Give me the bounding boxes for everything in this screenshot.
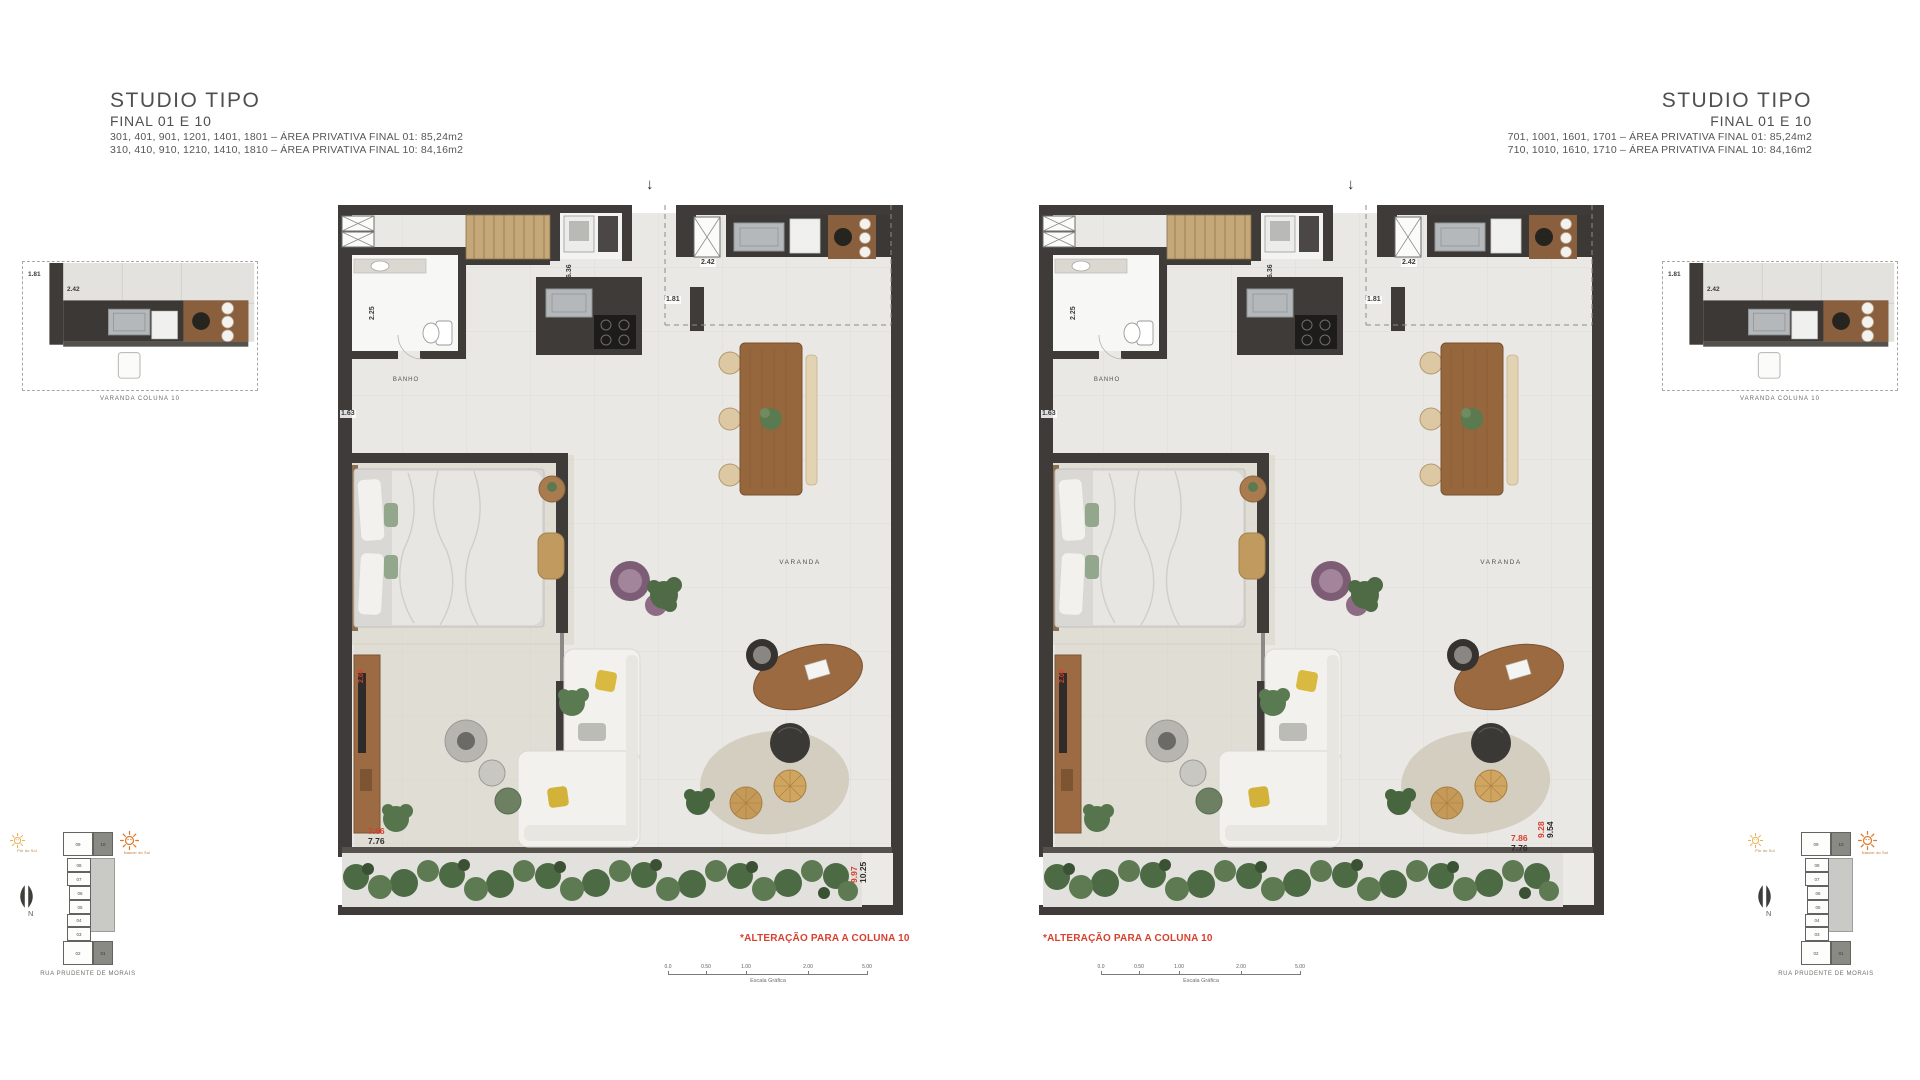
scale-bar-line <box>1101 974 1301 975</box>
inset-dim-width: 2.42 <box>1707 286 1720 294</box>
dim-bottom: 7.76 <box>1511 843 1528 853</box>
dim-163: 1.63 <box>1041 410 1057 418</box>
unit-cell-02: 02 <box>1801 941 1831 965</box>
building-slab <box>89 858 115 932</box>
scale-bar: 0.0 0.50 1.00 2.00 5.00 Escala Gráfica <box>1101 966 1301 988</box>
alteration-note: *ALTERAÇÃO PARA A COLUNA 10 <box>740 933 910 944</box>
sunrise-sun: Nascer do Sol <box>120 831 154 855</box>
unit-cell-01: 01 <box>93 941 113 965</box>
dim-242: 2.42 <box>1401 259 1417 267</box>
unit-cell-10: 10 <box>93 832 113 856</box>
sun-icon <box>120 831 139 850</box>
north-label: N <box>17 909 45 918</box>
unit-cell-08: 08 <box>67 858 91 872</box>
varanda-inset-drawing <box>1663 262 1897 390</box>
sun-label: Nascer do Sol <box>120 851 154 855</box>
inset-dim-width: 2.42 <box>67 286 80 294</box>
sun-icon <box>10 833 25 848</box>
room-label-varanda: VARANDA <box>1471 559 1531 566</box>
sun-label: Nascer do Sol <box>1858 851 1892 855</box>
title-block-right: STUDIO TIPO FINAL 01 E 10 701, 1001, 160… <box>1508 90 1812 157</box>
compass-icon <box>1755 885 1774 908</box>
scale-tick-label: 5.00 <box>862 964 872 970</box>
scale-bar-caption: Escala Gráfica <box>1101 978 1301 984</box>
scale-bar-line <box>668 974 868 975</box>
sunset-sun: Pôr do Sol <box>10 833 44 853</box>
varanda-inset-drawing <box>23 262 257 390</box>
unit-cell-07: 07 <box>1805 872 1829 886</box>
location-key-left: Pôr do Sol Nascer do Sol N 09 10 08 07 0… <box>12 828 180 988</box>
location-key-right: Pôr do Sol Nascer do Sol N 09 10 08 07 0… <box>1750 828 1918 988</box>
dim-pair-right: 9.28 9.54 <box>1537 821 1555 838</box>
alteration-note: *ALTERAÇÃO PARA A COLUNA 10 <box>1043 933 1213 944</box>
inset-dim-height: 1.81 <box>1668 271 1681 279</box>
scale-bar-caption: Escala Gráfica <box>668 978 868 984</box>
dim-225: 2.25 <box>369 306 377 320</box>
dim-pair-right: 9.97 10.25 <box>850 862 868 883</box>
dim-red-side: 2.08 <box>358 669 366 683</box>
dim-181: 1.81 <box>1366 296 1382 304</box>
dim-636: 6.36 <box>566 264 574 278</box>
room-label-varanda: VARANDA <box>770 559 830 566</box>
dim-225: 2.25 <box>1070 306 1078 320</box>
page-title: STUDIO TIPO <box>110 90 463 112</box>
page-title: STUDIO TIPO <box>1508 90 1812 112</box>
title-block-left: STUDIO TIPO FINAL 01 E 10 301, 401, 901,… <box>110 90 463 157</box>
north-label: N <box>1755 909 1783 918</box>
unit-cell-06: 06 <box>69 886 91 900</box>
dim-181: 1.81 <box>665 296 681 304</box>
dim-pair-bottom: 7.66 7.76 <box>368 826 385 846</box>
dim-right: 9.54 <box>1546 821 1555 838</box>
varanda-inset-left: 1.81 2.42 VARANDA COLUNA 10 <box>22 261 258 411</box>
scale-tick-label: 0.0 <box>665 964 672 970</box>
dim-right: 10.25 <box>859 862 868 883</box>
scale-tick-label: 5.00 <box>1295 964 1305 970</box>
entry-arrow-icon: ↓ <box>1347 176 1355 193</box>
unit-cell-03: 03 <box>67 927 91 941</box>
sunrise-sun: Nascer do Sol <box>1858 831 1892 855</box>
entry-arrow-icon: ↓ <box>646 176 654 193</box>
varanda-inset-right: 1.81 2.42 VARANDA COLUNA 10 <box>1662 261 1898 411</box>
page-subtitle: FINAL 01 E 10 <box>110 112 463 131</box>
building-key: 09 10 08 07 06 05 04 03 02 01 <box>63 832 113 965</box>
dim-bottom: 7.76 <box>368 836 385 846</box>
unit-cell-04: 04 <box>1805 914 1829 927</box>
unit-cell-01: 01 <box>1831 941 1851 965</box>
street-label: RUA PRUDENTE DE MORAIS <box>1756 971 1896 977</box>
dim-242: 2.42 <box>700 259 716 267</box>
building-key: 09 10 08 07 06 05 04 03 02 01 <box>1801 832 1851 965</box>
floor-plan-left: ↓ BANHO VARANDA 6.36 2.25 2.42 1.81 1.63… <box>338 178 903 1008</box>
dim-pair-bottom: 7.86 7.76 <box>1511 833 1528 853</box>
dim-red-bottom: 7.86 <box>1511 833 1528 843</box>
page-subtitle: FINAL 01 E 10 <box>1508 112 1812 131</box>
unit-cell-04: 04 <box>67 914 91 927</box>
dim-red-side: 2.08 <box>1059 669 1067 683</box>
units-line-1: 301, 401, 901, 1201, 1401, 1801 – ÁREA P… <box>110 131 463 144</box>
sunset-sun: Pôr do Sol <box>1748 833 1782 853</box>
scale-tick-label: 0.0 <box>1098 964 1105 970</box>
unit-cell-06: 06 <box>1807 886 1829 900</box>
unit-cell-08: 08 <box>1805 858 1829 872</box>
floor-plan-right: ↓ BANHO VARANDA 6.36 2.25 2.42 1.81 1.63… <box>1039 178 1604 1008</box>
inset-dim-height: 1.81 <box>28 271 41 279</box>
scale-tick-label: 0.50 <box>1134 964 1144 970</box>
unit-cell-10: 10 <box>1831 832 1851 856</box>
varanda-inset-box: 1.81 2.42 <box>1662 261 1898 391</box>
scale-tick-label: 1.00 <box>741 964 751 970</box>
building-slab <box>1827 858 1853 932</box>
scale-tick-label: 1.00 <box>1174 964 1184 970</box>
dim-red-bottom: 7.66 <box>368 826 385 836</box>
scale-bar: 0.0 0.50 1.00 2.00 5.00 Escala Gráfica <box>668 966 868 988</box>
unit-cell-09: 09 <box>63 832 93 856</box>
units-line-2: 310, 410, 910, 1210, 1410, 1810 – ÁREA P… <box>110 144 463 157</box>
street-label: RUA PRUDENTE DE MORAIS <box>18 971 158 977</box>
units-line-2: 710, 1010, 1610, 1710 – ÁREA PRIVATIVA F… <box>1508 144 1812 157</box>
unit-cell-02: 02 <box>63 941 93 965</box>
dim-163: 1.63 <box>340 410 356 418</box>
brochure-page: { "header_left": { "title": "STUDIO TIPO… <box>0 0 1920 1080</box>
sun-icon <box>1748 833 1763 848</box>
varanda-inset-box: 1.81 2.42 <box>22 261 258 391</box>
unit-cell-09: 09 <box>1801 832 1831 856</box>
north-compass: N <box>17 885 45 918</box>
unit-cell-05: 05 <box>1807 900 1829 914</box>
room-label-banho: BANHO <box>386 377 426 383</box>
unit-cell-05: 05 <box>69 900 91 914</box>
unit-cell-03: 03 <box>1805 927 1829 941</box>
scale-tick-label: 0.50 <box>701 964 711 970</box>
unit-cell-07: 07 <box>67 872 91 886</box>
inset-caption: VARANDA COLUNA 10 <box>22 396 258 402</box>
north-compass: N <box>1755 885 1783 918</box>
inset-caption: VARANDA COLUNA 10 <box>1662 396 1898 402</box>
compass-icon <box>17 885 36 908</box>
sun-label: Pôr do Sol <box>10 849 44 853</box>
scale-tick-label: 2.00 <box>1236 964 1246 970</box>
scale-tick-label: 2.00 <box>803 964 813 970</box>
sun-icon <box>1858 831 1877 850</box>
dim-636: 6.36 <box>1267 264 1275 278</box>
units-line-1: 701, 1001, 1601, 1701 – ÁREA PRIVATIVA F… <box>1508 131 1812 144</box>
room-label-banho: BANHO <box>1087 377 1127 383</box>
sun-label: Pôr do Sol <box>1748 849 1782 853</box>
